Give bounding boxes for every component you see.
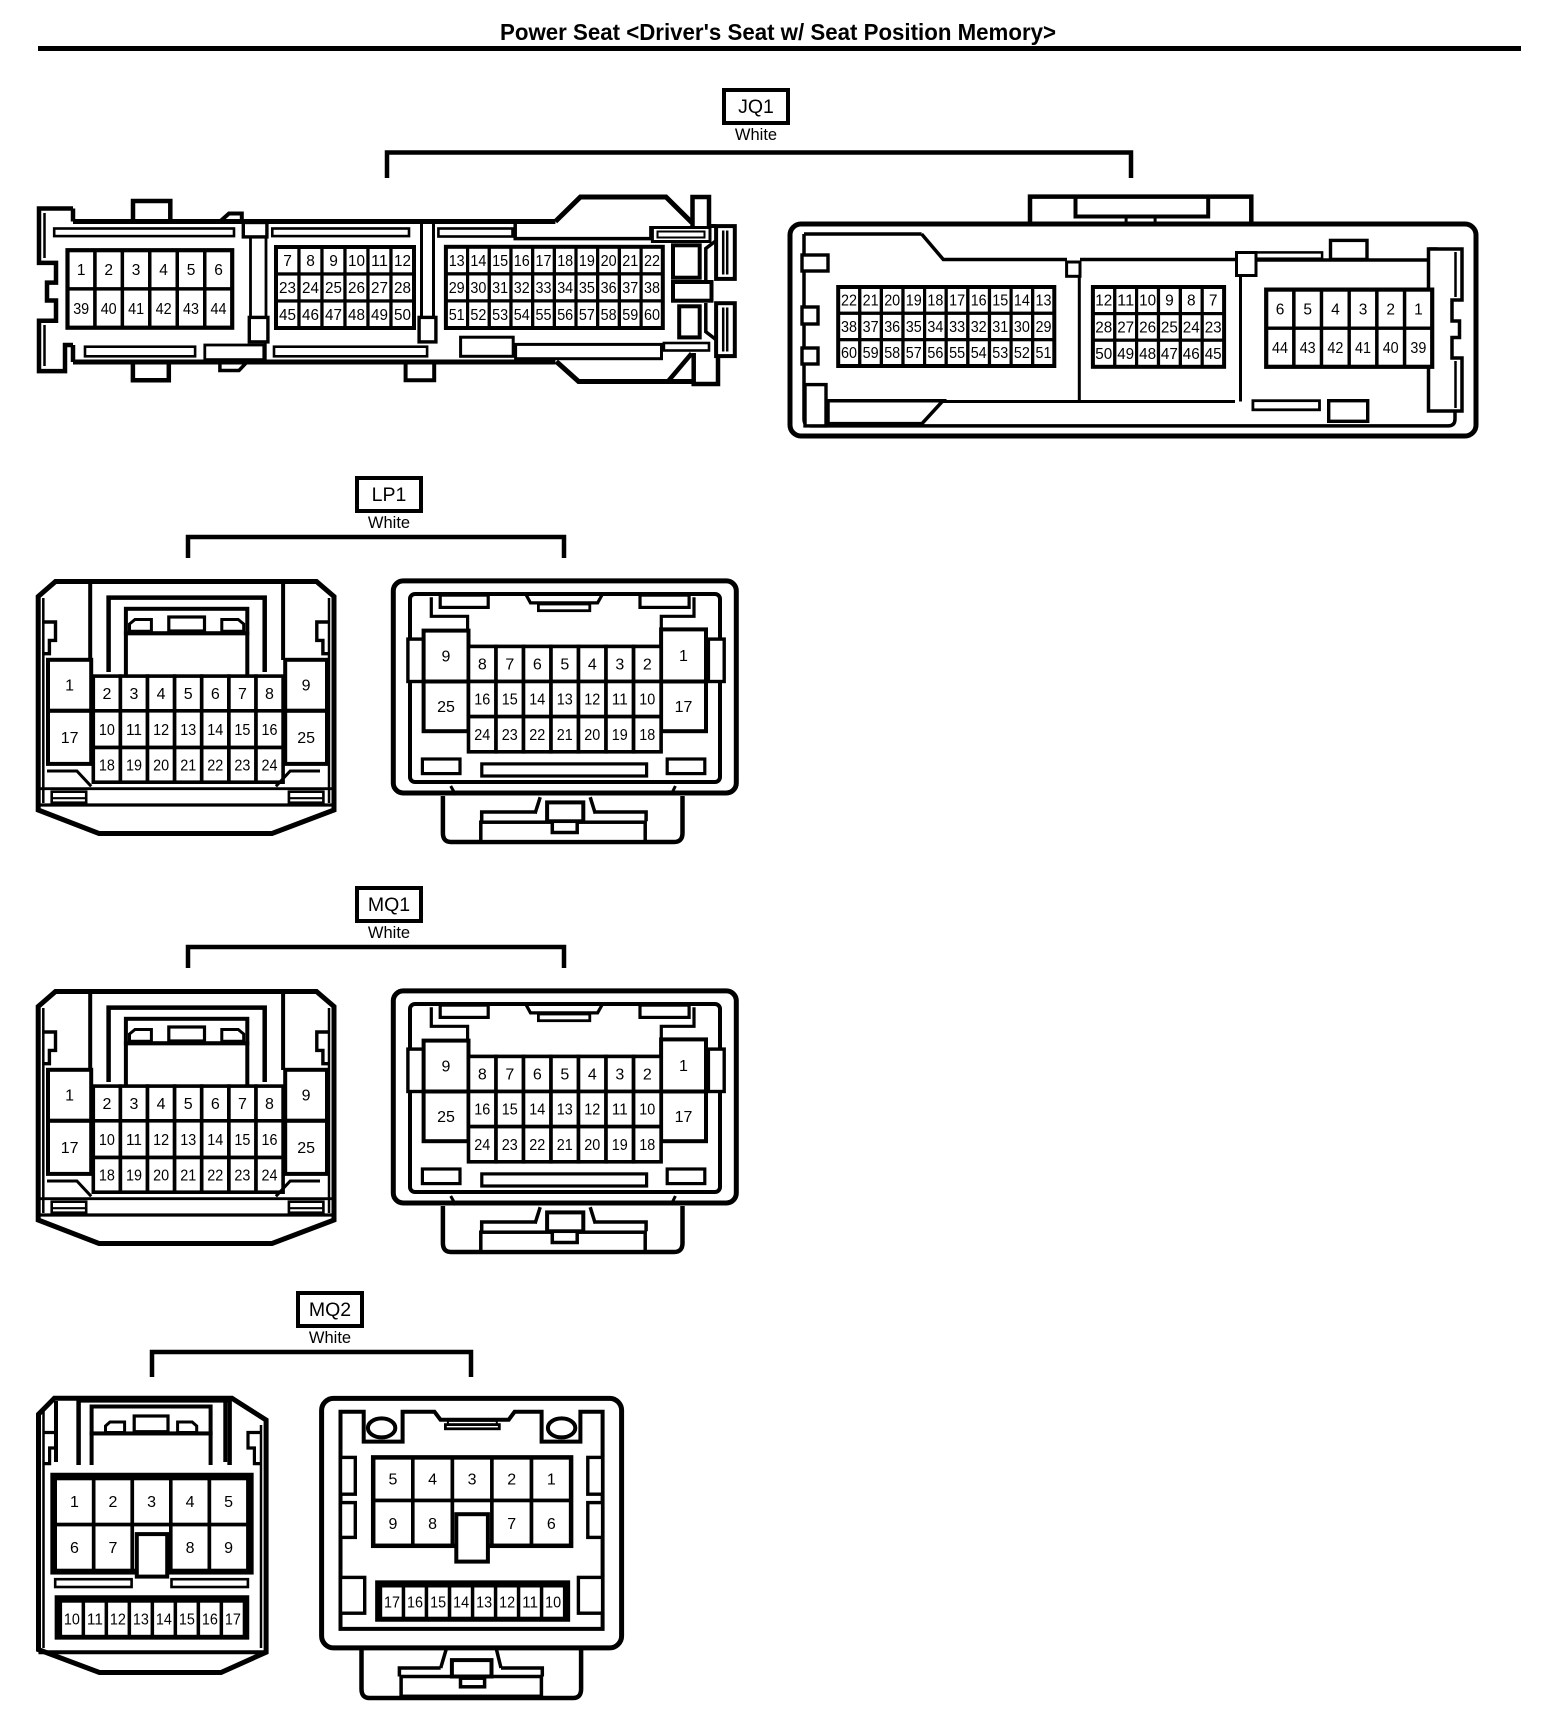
svg-text:6: 6 xyxy=(211,1096,220,1113)
svg-text:20: 20 xyxy=(601,253,617,270)
svg-text:57: 57 xyxy=(579,307,595,324)
svg-text:9: 9 xyxy=(1165,293,1174,310)
svg-text:54: 54 xyxy=(514,307,530,324)
svg-text:17: 17 xyxy=(536,253,552,270)
svg-text:15: 15 xyxy=(492,253,508,270)
svg-text:47: 47 xyxy=(325,307,342,324)
svg-text:JQ1: JQ1 xyxy=(738,96,774,118)
svg-text:1: 1 xyxy=(65,678,74,695)
svg-text:2: 2 xyxy=(109,1494,118,1511)
svg-text:5: 5 xyxy=(187,262,196,279)
svg-text:12: 12 xyxy=(499,1595,515,1612)
svg-text:53: 53 xyxy=(992,345,1008,362)
svg-text:59: 59 xyxy=(863,345,879,362)
svg-text:MQ1: MQ1 xyxy=(368,894,410,916)
svg-text:1: 1 xyxy=(70,1494,79,1511)
svg-text:5: 5 xyxy=(389,1472,398,1489)
svg-text:37: 37 xyxy=(863,319,879,336)
svg-text:20: 20 xyxy=(153,1167,169,1184)
svg-text:14: 14 xyxy=(453,1595,469,1612)
svg-text:25: 25 xyxy=(325,280,342,297)
svg-text:24: 24 xyxy=(474,1137,490,1154)
svg-text:9: 9 xyxy=(389,1516,398,1533)
svg-text:13: 13 xyxy=(180,1132,196,1149)
svg-text:29: 29 xyxy=(1036,319,1052,336)
svg-text:3: 3 xyxy=(468,1472,477,1489)
svg-text:26: 26 xyxy=(1139,319,1156,336)
svg-text:37: 37 xyxy=(622,280,638,297)
svg-text:45: 45 xyxy=(1205,346,1222,363)
svg-text:23: 23 xyxy=(234,1167,250,1184)
svg-text:6: 6 xyxy=(547,1516,556,1533)
svg-text:35: 35 xyxy=(906,319,922,336)
svg-text:24: 24 xyxy=(262,758,278,775)
svg-text:30: 30 xyxy=(470,280,486,297)
svg-text:12: 12 xyxy=(110,1611,126,1628)
svg-text:Power Seat <Driver's Seat w/ S: Power Seat <Driver's Seat w/ Seat Positi… xyxy=(500,19,1056,45)
svg-text:34: 34 xyxy=(557,280,573,297)
svg-text:19: 19 xyxy=(126,758,142,775)
svg-text:4: 4 xyxy=(159,262,168,279)
svg-text:15: 15 xyxy=(234,722,250,739)
svg-text:50: 50 xyxy=(1095,346,1112,363)
svg-text:49: 49 xyxy=(1117,346,1134,363)
svg-text:1: 1 xyxy=(1414,301,1423,318)
svg-text:48: 48 xyxy=(1139,346,1156,363)
svg-text:55: 55 xyxy=(536,307,552,324)
svg-text:56: 56 xyxy=(927,345,943,362)
svg-text:33: 33 xyxy=(536,280,552,297)
svg-text:10: 10 xyxy=(99,1132,115,1149)
svg-text:22: 22 xyxy=(644,253,660,270)
svg-text:55: 55 xyxy=(949,345,965,362)
svg-text:22: 22 xyxy=(841,293,857,310)
svg-text:17: 17 xyxy=(675,1109,693,1126)
svg-text:15: 15 xyxy=(502,692,518,709)
svg-text:11: 11 xyxy=(126,1132,142,1149)
svg-text:31: 31 xyxy=(992,319,1008,336)
svg-text:9: 9 xyxy=(302,1088,311,1105)
svg-text:7: 7 xyxy=(238,1096,247,1113)
svg-text:3: 3 xyxy=(147,1494,156,1511)
svg-text:7: 7 xyxy=(1209,293,1218,310)
svg-text:32: 32 xyxy=(971,319,987,336)
svg-text:28: 28 xyxy=(394,280,411,297)
svg-text:3: 3 xyxy=(132,262,141,279)
svg-text:13: 13 xyxy=(557,1102,573,1119)
svg-text:24: 24 xyxy=(474,727,490,744)
svg-text:14: 14 xyxy=(207,1132,223,1149)
svg-text:53: 53 xyxy=(492,307,508,324)
svg-text:8: 8 xyxy=(306,253,315,270)
svg-text:14: 14 xyxy=(529,692,545,709)
svg-text:43: 43 xyxy=(183,301,199,318)
svg-text:47: 47 xyxy=(1161,346,1178,363)
svg-text:18: 18 xyxy=(639,727,655,744)
svg-text:White: White xyxy=(368,514,410,532)
svg-text:57: 57 xyxy=(906,345,922,362)
svg-text:8: 8 xyxy=(1187,293,1196,310)
svg-text:42: 42 xyxy=(1327,340,1343,357)
svg-text:3: 3 xyxy=(1359,301,1368,318)
svg-text:51: 51 xyxy=(1036,345,1052,362)
svg-text:5: 5 xyxy=(1303,301,1312,318)
svg-text:35: 35 xyxy=(579,280,595,297)
svg-text:24: 24 xyxy=(302,280,319,297)
svg-text:13: 13 xyxy=(476,1595,492,1612)
svg-text:54: 54 xyxy=(971,345,987,362)
svg-text:18: 18 xyxy=(927,293,943,310)
svg-text:32: 32 xyxy=(514,280,530,297)
svg-text:48: 48 xyxy=(348,307,365,324)
svg-text:58: 58 xyxy=(884,345,900,362)
svg-text:17: 17 xyxy=(949,293,965,310)
svg-text:21: 21 xyxy=(622,253,638,270)
svg-text:13: 13 xyxy=(133,1611,149,1628)
svg-text:2: 2 xyxy=(1386,301,1395,318)
svg-text:22: 22 xyxy=(529,1137,545,1154)
svg-text:2: 2 xyxy=(104,262,113,279)
svg-text:56: 56 xyxy=(557,307,573,324)
svg-text:21: 21 xyxy=(557,1137,573,1154)
svg-text:7: 7 xyxy=(505,1067,514,1084)
svg-text:40: 40 xyxy=(1383,340,1399,357)
svg-text:19: 19 xyxy=(612,727,628,744)
svg-text:1: 1 xyxy=(547,1472,556,1489)
svg-text:8: 8 xyxy=(265,686,274,703)
svg-text:25: 25 xyxy=(297,1140,315,1157)
svg-text:19: 19 xyxy=(906,293,922,310)
svg-text:16: 16 xyxy=(474,692,490,709)
svg-text:13: 13 xyxy=(449,253,465,270)
svg-text:2: 2 xyxy=(643,1067,652,1084)
svg-text:15: 15 xyxy=(992,293,1008,310)
svg-text:33: 33 xyxy=(949,319,965,336)
svg-text:12: 12 xyxy=(153,722,169,739)
svg-text:40: 40 xyxy=(101,301,117,318)
svg-text:11: 11 xyxy=(522,1595,538,1612)
svg-text:4: 4 xyxy=(428,1472,437,1489)
svg-text:1: 1 xyxy=(679,1058,688,1075)
svg-text:20: 20 xyxy=(584,1137,600,1154)
svg-text:White: White xyxy=(368,924,410,942)
svg-text:29: 29 xyxy=(449,280,465,297)
svg-text:6: 6 xyxy=(533,657,542,674)
svg-text:25: 25 xyxy=(1161,319,1178,336)
svg-text:9: 9 xyxy=(442,649,451,666)
svg-text:15: 15 xyxy=(179,1611,195,1628)
svg-text:7: 7 xyxy=(283,253,292,270)
svg-text:12: 12 xyxy=(153,1132,169,1149)
svg-text:6: 6 xyxy=(70,1540,79,1557)
svg-text:6: 6 xyxy=(211,686,220,703)
svg-text:17: 17 xyxy=(384,1595,400,1612)
svg-text:10: 10 xyxy=(348,253,365,270)
svg-text:2: 2 xyxy=(643,657,652,674)
svg-text:16: 16 xyxy=(971,293,987,310)
svg-text:60: 60 xyxy=(841,345,857,362)
svg-text:8: 8 xyxy=(265,1096,274,1113)
svg-text:25: 25 xyxy=(437,699,455,716)
svg-text:11: 11 xyxy=(126,722,142,739)
svg-text:49: 49 xyxy=(371,307,388,324)
svg-text:17: 17 xyxy=(675,699,693,716)
svg-text:52: 52 xyxy=(1014,345,1030,362)
svg-text:19: 19 xyxy=(126,1167,142,1184)
svg-text:28: 28 xyxy=(1095,319,1112,336)
svg-text:22: 22 xyxy=(207,1167,223,1184)
svg-text:14: 14 xyxy=(1014,293,1030,310)
svg-text:39: 39 xyxy=(73,301,89,318)
svg-text:44: 44 xyxy=(1272,340,1288,357)
svg-text:4: 4 xyxy=(1331,301,1340,318)
svg-text:22: 22 xyxy=(207,758,223,775)
svg-text:MQ2: MQ2 xyxy=(309,1299,351,1321)
svg-text:10: 10 xyxy=(99,722,115,739)
svg-text:5: 5 xyxy=(184,686,193,703)
svg-text:59: 59 xyxy=(622,307,638,324)
svg-text:8: 8 xyxy=(478,1067,487,1084)
svg-text:41: 41 xyxy=(1355,340,1371,357)
svg-text:20: 20 xyxy=(584,727,600,744)
svg-text:24: 24 xyxy=(1183,319,1200,336)
svg-text:8: 8 xyxy=(478,657,487,674)
svg-text:10: 10 xyxy=(639,1102,655,1119)
svg-text:39: 39 xyxy=(1410,340,1426,357)
svg-text:5: 5 xyxy=(224,1494,233,1511)
svg-text:18: 18 xyxy=(557,253,573,270)
svg-text:41: 41 xyxy=(128,301,144,318)
svg-text:3: 3 xyxy=(615,657,624,674)
svg-text:17: 17 xyxy=(225,1611,241,1628)
svg-text:1: 1 xyxy=(679,648,688,665)
svg-text:11: 11 xyxy=(612,1102,628,1119)
svg-text:21: 21 xyxy=(180,758,196,775)
svg-text:13: 13 xyxy=(557,692,573,709)
svg-text:16: 16 xyxy=(407,1595,423,1612)
svg-text:16: 16 xyxy=(262,1132,278,1149)
svg-text:9: 9 xyxy=(329,253,338,270)
svg-text:4: 4 xyxy=(157,686,166,703)
svg-text:10: 10 xyxy=(639,692,655,709)
svg-text:21: 21 xyxy=(863,293,879,310)
svg-text:11: 11 xyxy=(371,253,388,270)
svg-text:14: 14 xyxy=(156,1611,172,1628)
svg-text:18: 18 xyxy=(639,1137,655,1154)
svg-text:27: 27 xyxy=(1117,319,1134,336)
svg-text:10: 10 xyxy=(64,1611,80,1628)
svg-text:8: 8 xyxy=(428,1516,437,1533)
svg-text:58: 58 xyxy=(601,307,617,324)
svg-text:4: 4 xyxy=(157,1096,166,1113)
svg-text:4: 4 xyxy=(588,657,597,674)
svg-text:14: 14 xyxy=(207,722,223,739)
svg-text:15: 15 xyxy=(502,1102,518,1119)
svg-text:21: 21 xyxy=(557,727,573,744)
svg-text:20: 20 xyxy=(153,758,169,775)
svg-text:21: 21 xyxy=(180,1167,196,1184)
svg-text:25: 25 xyxy=(437,1109,455,1126)
svg-text:2: 2 xyxy=(102,1096,111,1113)
svg-text:10: 10 xyxy=(1139,293,1156,310)
svg-text:11: 11 xyxy=(87,1611,103,1628)
svg-text:7: 7 xyxy=(109,1540,118,1557)
svg-text:15: 15 xyxy=(234,1132,250,1149)
svg-text:19: 19 xyxy=(579,253,595,270)
svg-text:19: 19 xyxy=(612,1137,628,1154)
svg-text:30: 30 xyxy=(1014,319,1030,336)
svg-text:50: 50 xyxy=(394,307,411,324)
svg-text:5: 5 xyxy=(184,1096,193,1113)
svg-text:22: 22 xyxy=(529,727,545,744)
svg-text:17: 17 xyxy=(61,730,79,747)
svg-text:27: 27 xyxy=(371,280,388,297)
svg-text:16: 16 xyxy=(202,1611,218,1628)
svg-text:White: White xyxy=(309,1329,351,1347)
svg-text:43: 43 xyxy=(1300,340,1316,357)
svg-text:9: 9 xyxy=(302,678,311,695)
svg-text:13: 13 xyxy=(180,722,196,739)
svg-text:38: 38 xyxy=(644,280,660,297)
svg-text:13: 13 xyxy=(1036,293,1052,310)
svg-text:23: 23 xyxy=(502,1137,518,1154)
svg-text:25: 25 xyxy=(297,730,315,747)
svg-text:15: 15 xyxy=(430,1595,446,1612)
svg-text:24: 24 xyxy=(262,1167,278,1184)
svg-text:14: 14 xyxy=(470,253,486,270)
svg-text:46: 46 xyxy=(302,307,319,324)
svg-text:6: 6 xyxy=(214,262,223,279)
svg-text:18: 18 xyxy=(99,758,115,775)
svg-text:LP1: LP1 xyxy=(372,484,407,506)
svg-text:23: 23 xyxy=(234,758,250,775)
svg-text:10: 10 xyxy=(545,1595,561,1612)
svg-text:11: 11 xyxy=(1117,293,1134,310)
svg-text:31: 31 xyxy=(492,280,508,297)
svg-text:11: 11 xyxy=(612,692,628,709)
svg-text:6: 6 xyxy=(1276,301,1285,318)
svg-text:9: 9 xyxy=(442,1059,451,1076)
svg-text:45: 45 xyxy=(279,307,296,324)
svg-text:14: 14 xyxy=(529,1102,545,1119)
svg-text:3: 3 xyxy=(130,1096,139,1113)
svg-text:12: 12 xyxy=(394,253,411,270)
svg-text:3: 3 xyxy=(130,686,139,703)
svg-text:36: 36 xyxy=(601,280,617,297)
svg-text:26: 26 xyxy=(348,280,365,297)
svg-text:60: 60 xyxy=(644,307,660,324)
svg-text:4: 4 xyxy=(186,1494,195,1511)
svg-text:6: 6 xyxy=(533,1067,542,1084)
svg-text:1: 1 xyxy=(65,1088,74,1105)
svg-text:2: 2 xyxy=(507,1472,516,1489)
svg-text:34: 34 xyxy=(927,319,943,336)
svg-text:36: 36 xyxy=(884,319,900,336)
svg-text:23: 23 xyxy=(502,727,518,744)
svg-text:7: 7 xyxy=(238,686,247,703)
svg-text:4: 4 xyxy=(588,1067,597,1084)
svg-text:23: 23 xyxy=(1205,319,1222,336)
svg-text:7: 7 xyxy=(505,657,514,674)
svg-text:5: 5 xyxy=(560,1067,569,1084)
svg-text:16: 16 xyxy=(262,722,278,739)
svg-text:12: 12 xyxy=(584,1102,600,1119)
svg-text:12: 12 xyxy=(1095,293,1112,310)
svg-text:46: 46 xyxy=(1183,346,1200,363)
svg-text:38: 38 xyxy=(841,319,857,336)
svg-text:18: 18 xyxy=(99,1167,115,1184)
svg-text:3: 3 xyxy=(615,1067,624,1084)
svg-text:23: 23 xyxy=(279,280,296,297)
svg-text:9: 9 xyxy=(224,1540,233,1557)
svg-text:White: White xyxy=(735,126,777,144)
svg-text:5: 5 xyxy=(560,657,569,674)
svg-text:51: 51 xyxy=(449,307,465,324)
svg-text:52: 52 xyxy=(470,307,486,324)
svg-text:7: 7 xyxy=(507,1516,516,1533)
svg-text:8: 8 xyxy=(186,1540,195,1557)
svg-text:16: 16 xyxy=(514,253,530,270)
svg-text:42: 42 xyxy=(156,301,172,318)
svg-text:12: 12 xyxy=(584,692,600,709)
svg-text:2: 2 xyxy=(102,686,111,703)
svg-text:17: 17 xyxy=(61,1140,79,1157)
svg-text:1: 1 xyxy=(77,262,86,279)
svg-text:20: 20 xyxy=(884,293,900,310)
svg-text:44: 44 xyxy=(211,301,227,318)
svg-text:16: 16 xyxy=(474,1102,490,1119)
